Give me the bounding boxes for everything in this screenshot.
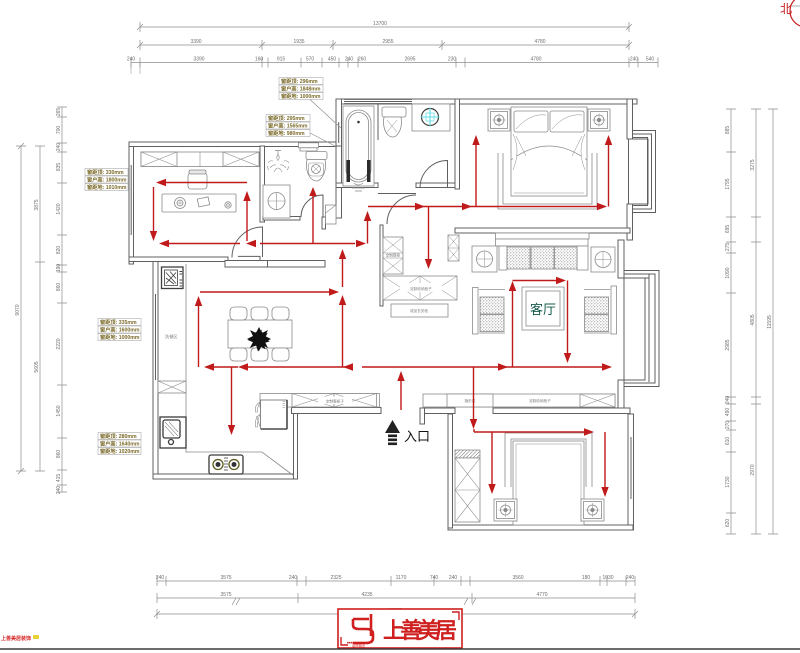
svg-text:1795: 1795 xyxy=(725,178,731,189)
svg-text:860: 860 xyxy=(56,283,62,292)
svg-text:13700: 13700 xyxy=(373,21,387,27)
svg-text:275: 275 xyxy=(725,243,731,252)
svg-text:265: 265 xyxy=(56,108,62,117)
svg-text:3575: 3575 xyxy=(220,575,231,581)
svg-text:240: 240 xyxy=(449,575,458,581)
svg-text:3560: 3560 xyxy=(512,575,523,581)
svg-text:4235: 4235 xyxy=(361,592,372,598)
svg-text:190: 190 xyxy=(56,264,62,273)
svg-text:1170: 1170 xyxy=(396,575,407,581)
svg-text:1420: 1420 xyxy=(56,203,62,214)
svg-text:835: 835 xyxy=(56,163,62,172)
svg-text:540: 540 xyxy=(646,57,655,63)
svg-text:240: 240 xyxy=(289,575,298,581)
svg-text:1090: 1090 xyxy=(725,267,731,278)
svg-text:3875: 3875 xyxy=(34,199,40,210)
svg-text:2695: 2695 xyxy=(404,57,415,63)
svg-text:4780: 4780 xyxy=(534,39,545,45)
svg-text:窗距顶: 330mm: 窗距顶: 330mm xyxy=(87,168,124,176)
svg-text:2220: 2220 xyxy=(56,338,62,349)
svg-text:4780: 4780 xyxy=(530,57,541,63)
svg-text:3390: 3390 xyxy=(193,57,204,63)
svg-text:695: 695 xyxy=(725,225,731,234)
svg-text:定制收纳柜子: 定制收纳柜子 xyxy=(410,286,432,291)
svg-text:610: 610 xyxy=(725,437,731,446)
svg-text:窗距顶: 335mm: 窗距顶: 335mm xyxy=(100,318,137,326)
svg-text:北: 北 xyxy=(780,2,792,16)
svg-text:2985: 2985 xyxy=(725,339,731,350)
svg-text:740: 740 xyxy=(430,575,439,581)
svg-text:490: 490 xyxy=(725,408,731,417)
svg-text:860: 860 xyxy=(56,450,62,459)
svg-text:3575: 3575 xyxy=(220,592,231,598)
svg-text:260: 260 xyxy=(358,57,367,63)
svg-text:入口: 入口 xyxy=(404,429,430,444)
svg-text:窗户高: 1800mm: 窗户高: 1800mm xyxy=(87,176,127,184)
svg-text:230: 230 xyxy=(448,57,457,63)
svg-text:窗距顶: 295mm: 窗距顶: 295mm xyxy=(268,114,305,122)
svg-text:窗户高: 1600mm: 窗户高: 1600mm xyxy=(100,326,140,334)
svg-text:上善美居: 上善美居 xyxy=(383,618,457,643)
svg-text:定制鞋柜: 定制鞋柜 xyxy=(386,253,401,258)
svg-text:窗距地: 1020mm: 窗距地: 1020mm xyxy=(100,447,140,455)
svg-text:240: 240 xyxy=(345,57,354,63)
svg-text:9070: 9070 xyxy=(15,304,21,315)
svg-text:240: 240 xyxy=(56,486,62,495)
svg-text:620: 620 xyxy=(725,519,731,528)
svg-text:2970: 2970 xyxy=(750,464,756,475)
svg-text:1935: 1935 xyxy=(293,39,304,45)
svg-text:180: 180 xyxy=(582,575,591,581)
svg-text:450: 450 xyxy=(328,57,337,63)
svg-text:1030: 1030 xyxy=(602,575,613,581)
svg-text:窗距顶: 296mm: 窗距顶: 296mm xyxy=(281,77,318,85)
svg-text:洗餐区: 洗餐区 xyxy=(165,333,178,340)
svg-text:2325: 2325 xyxy=(330,575,341,581)
svg-text:240: 240 xyxy=(156,575,165,581)
svg-text:885: 885 xyxy=(725,126,731,135)
svg-text:窗户高: 1565mm: 窗户高: 1565mm xyxy=(268,122,308,130)
svg-text:820: 820 xyxy=(56,246,62,255)
svg-text:240: 240 xyxy=(56,143,62,152)
svg-text:窗户高: 1640mm: 窗户高: 1640mm xyxy=(100,440,140,448)
svg-text:270: 270 xyxy=(725,421,731,430)
svg-text:570: 570 xyxy=(306,57,315,63)
svg-text:定制鞋柜子: 定制鞋柜子 xyxy=(326,399,344,404)
svg-text:窗距地: 1000mm: 窗距地: 1000mm xyxy=(281,92,321,100)
svg-text:240: 240 xyxy=(626,575,635,581)
svg-text:窗距顶: 280mm: 窗距顶: 280mm xyxy=(100,432,137,440)
svg-text:3275: 3275 xyxy=(750,159,756,170)
svg-text:窗距地: 1000mm: 窗距地: 1000mm xyxy=(100,333,140,341)
svg-text:1730: 1730 xyxy=(725,476,731,487)
svg-text:4770: 4770 xyxy=(536,592,547,598)
svg-text:240: 240 xyxy=(725,396,731,405)
svg-text:2955: 2955 xyxy=(382,39,393,45)
svg-text:700: 700 xyxy=(56,126,62,135)
svg-text:415: 415 xyxy=(56,474,62,483)
svg-text:窗距地: 980mm: 窗距地: 980mm xyxy=(268,129,305,137)
svg-text:160: 160 xyxy=(255,57,264,63)
svg-text:窗距地: 1010mm: 窗距地: 1010mm xyxy=(87,183,127,191)
svg-text:上善美居装饰: 上善美居装饰 xyxy=(1,635,31,642)
svg-text:窗户高: 1848mm: 窗户高: 1848mm xyxy=(281,85,321,93)
svg-text:成品玄关柜: 成品玄关柜 xyxy=(410,308,428,313)
svg-text:5605: 5605 xyxy=(34,361,40,372)
svg-text:装饰集团: 装饰集团 xyxy=(352,643,365,648)
svg-text:客厅: 客厅 xyxy=(530,302,556,317)
svg-text:4805: 4805 xyxy=(750,314,756,325)
svg-text:915: 915 xyxy=(277,57,286,63)
svg-text:3390: 3390 xyxy=(190,39,201,45)
svg-text:定制收纳柜子: 定制收纳柜子 xyxy=(529,398,551,403)
svg-text:240: 240 xyxy=(630,57,639,63)
svg-text:11595: 11595 xyxy=(767,315,773,329)
svg-text:1450: 1450 xyxy=(56,405,62,416)
svg-text:240: 240 xyxy=(127,57,136,63)
